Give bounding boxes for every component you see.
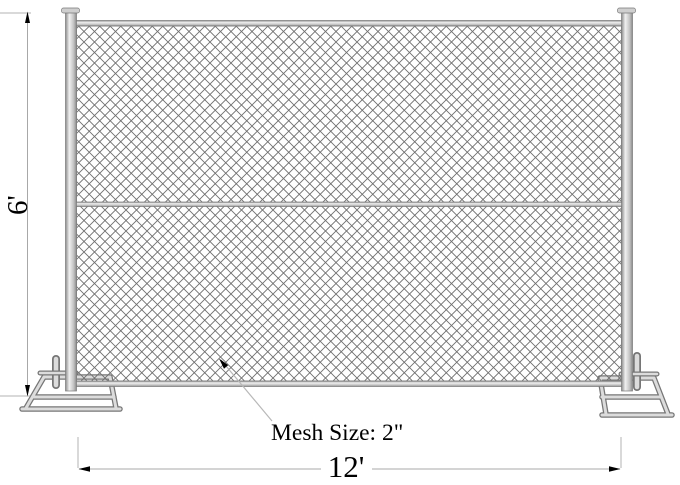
- down-arrow-icon: [25, 385, 30, 397]
- mid-rail: [76, 202, 622, 207]
- right-post: [622, 12, 633, 391]
- fence-panel: [62, 8, 636, 391]
- fence-panel-diagram: 6' 12' Mesh Size: 2": [0, 0, 680, 485]
- width-label: 12': [328, 449, 365, 484]
- right-post-cap: [618, 8, 636, 13]
- left-post: [66, 12, 77, 391]
- bottom-rail: [66, 381, 632, 387]
- mesh-size-label: Mesh Size: 2": [271, 420, 403, 446]
- right-arrow-icon: [609, 466, 621, 471]
- height-dimension: 6': [0, 12, 34, 397]
- left-post-cap: [62, 8, 80, 13]
- fence-diagram-page: 6' 12' Mesh Size: 2": [0, 0, 680, 485]
- left-arrow-icon: [79, 466, 91, 471]
- height-label: 6': [2, 195, 34, 215]
- top-rail: [66, 21, 632, 27]
